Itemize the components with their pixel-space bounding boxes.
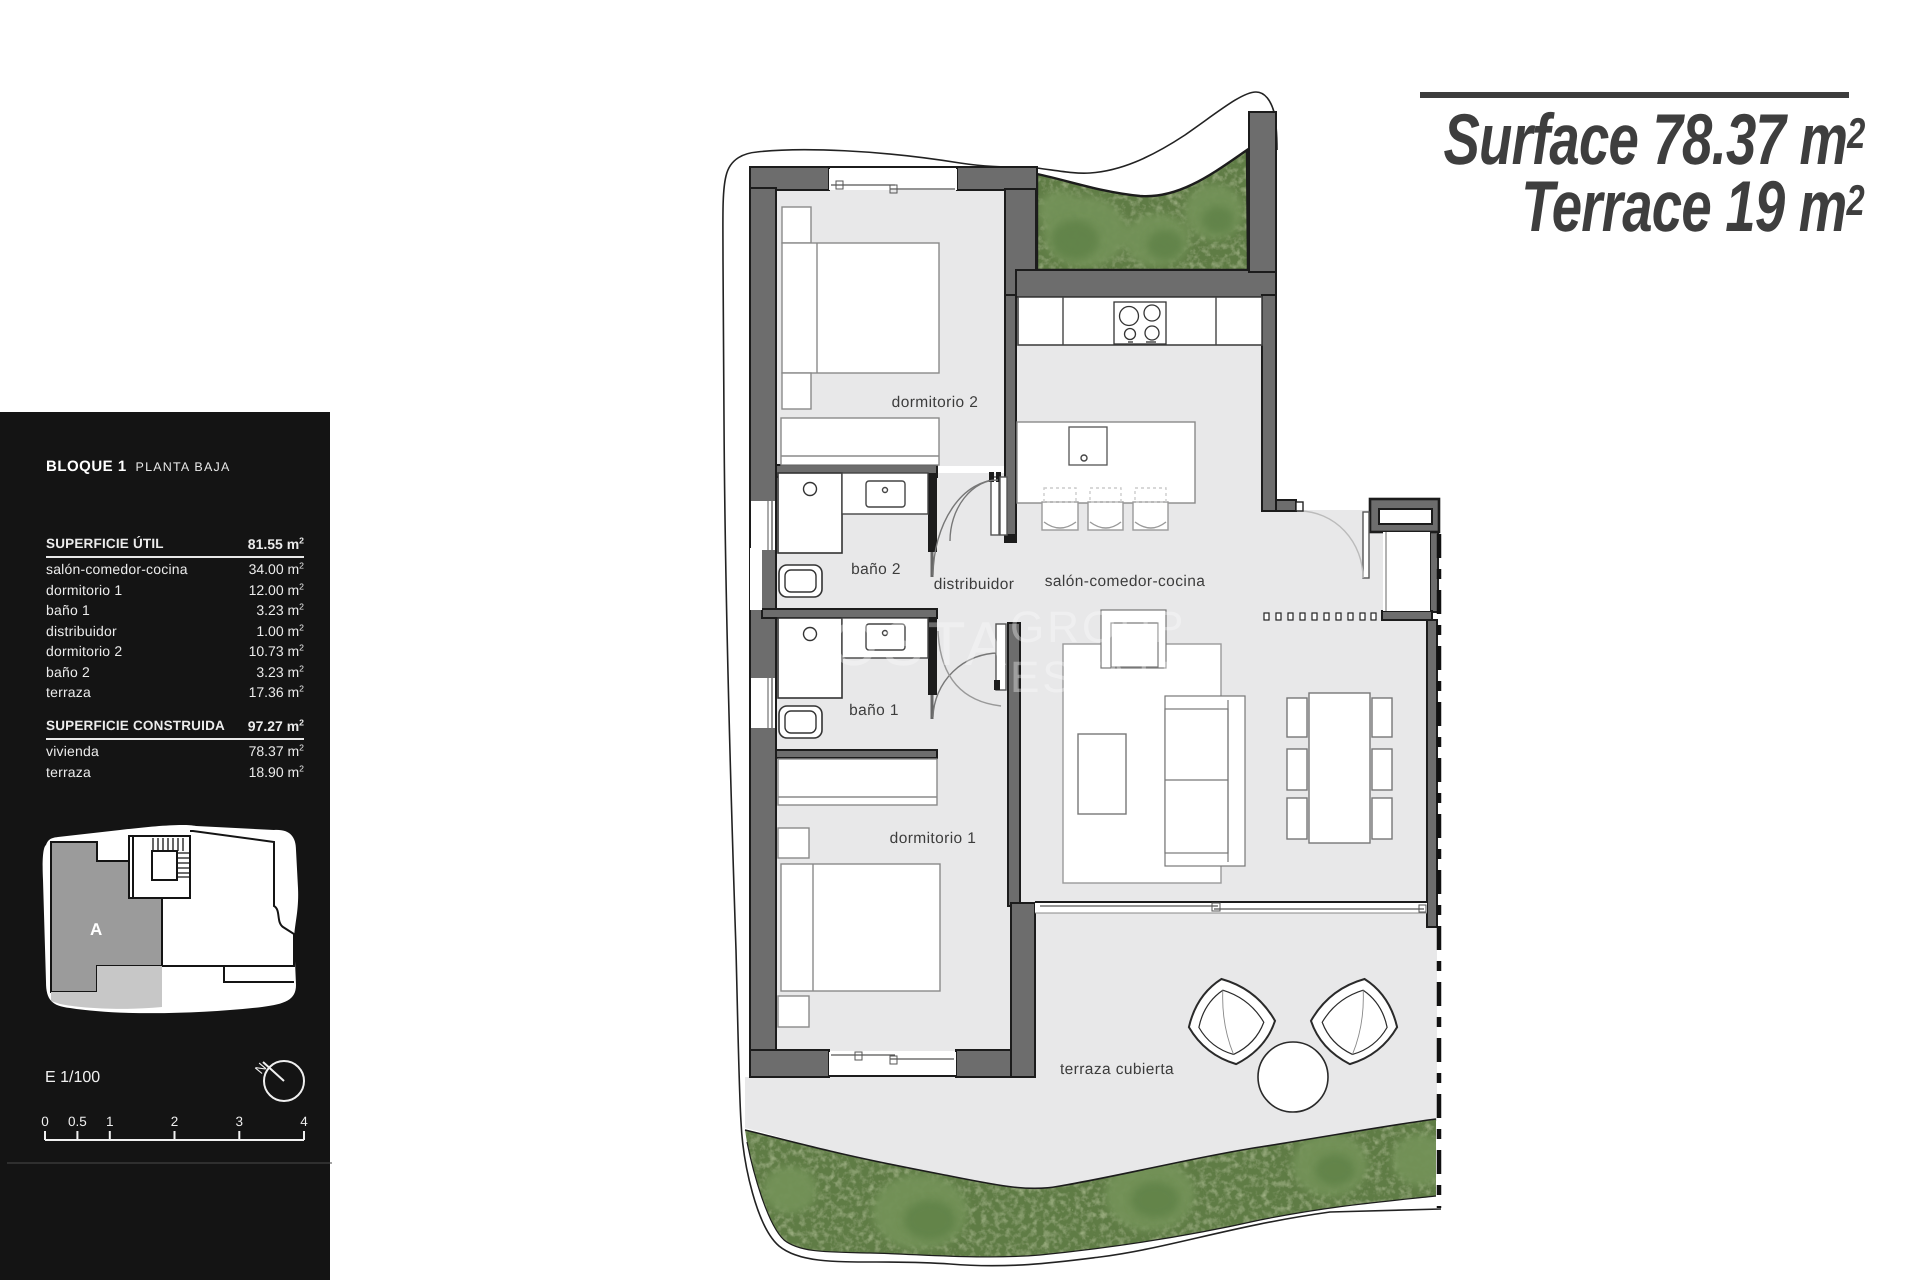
svg-text:GROUP: GROUP: [1010, 603, 1186, 652]
svg-text:baño 1: baño 1: [849, 702, 899, 719]
svg-text:salón-comedor-cocina: salón-comedor-cocina: [1045, 573, 1206, 590]
svg-text:distribuidor: distribuidor: [934, 576, 1015, 593]
svg-text:dormitorio 2: dormitorio 2: [892, 394, 979, 411]
svg-text:OSTA: OSTA: [830, 610, 1010, 679]
svg-text:dormitorio 1: dormitorio 1: [890, 830, 977, 847]
svg-text:baño 2: baño 2: [851, 561, 901, 578]
svg-text:terraza cubierta: terraza cubierta: [1060, 1061, 1174, 1078]
svg-text:ESTATE: ESTATE: [1010, 653, 1193, 702]
